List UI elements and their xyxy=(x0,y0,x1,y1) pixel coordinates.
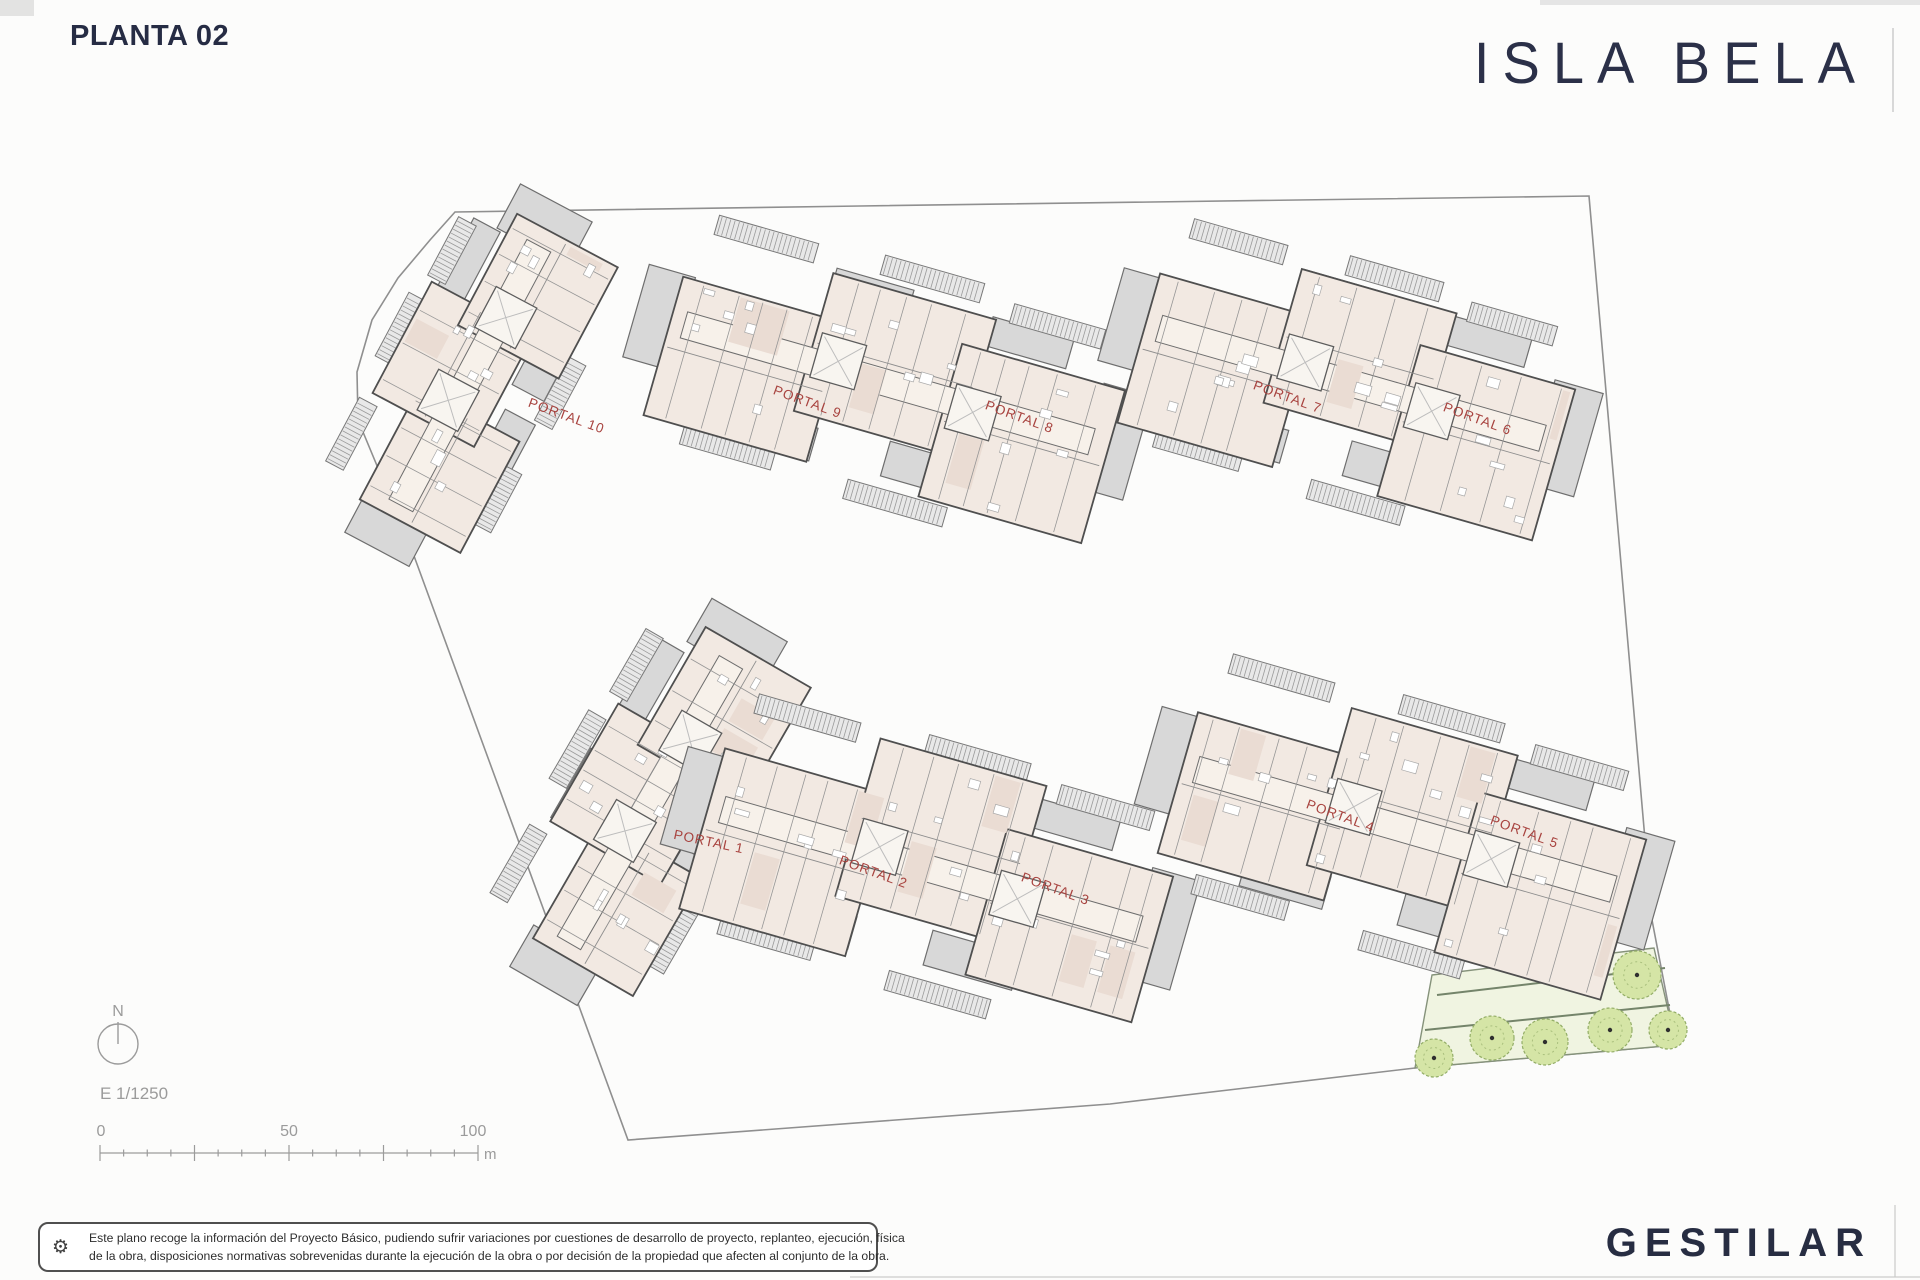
tree-icon xyxy=(1613,951,1661,999)
scan-artifact xyxy=(850,1276,1920,1278)
page-title: PLANTA 02 xyxy=(70,20,229,53)
scan-artifact xyxy=(1892,28,1894,112)
scale-ratio-label: E 1/1250 xyxy=(100,1084,168,1103)
disclaimer-line-1: Este plano recoge la información del Pro… xyxy=(89,1229,905,1247)
building-cluster-portales-4-5 xyxy=(1113,632,1694,1026)
site-plan-canvas: PORTAL 10PORTAL 9PORTAL 8PORTAL 7PORTAL … xyxy=(0,0,1920,1280)
building-cluster-portales-7-6 xyxy=(1077,197,1621,570)
scan-artifact xyxy=(1540,0,1920,5)
scale-unit-label: m xyxy=(484,1146,497,1163)
north-label: N xyxy=(112,1003,124,1020)
scale-tick-label: 0 xyxy=(97,1123,106,1140)
gear-icon: ⚙ xyxy=(52,1238,69,1257)
plan-sheet: PORTAL 10PORTAL 9PORTAL 8PORTAL 7PORTAL … xyxy=(0,0,1920,1280)
developer-logo-gestilar: GESTILAR xyxy=(1606,1221,1872,1266)
disclaimer-line-2: de la obra, disposiciones normativas sob… xyxy=(89,1247,905,1265)
tree-icon xyxy=(1415,1039,1453,1077)
building-cluster-portales-9-8 xyxy=(602,193,1170,573)
scan-artifact xyxy=(0,0,34,16)
disclaimer-box: ⚙ Este plano recoge la información del P… xyxy=(38,1222,878,1272)
scale-bar: 050100m xyxy=(97,1123,497,1163)
brand-logo-isla-bela: ISLA BELA xyxy=(1474,29,1868,97)
scan-artifact xyxy=(1894,1205,1896,1277)
tree-icon xyxy=(1649,1011,1687,1049)
north-compass: N xyxy=(98,1003,138,1064)
tree-icon xyxy=(1522,1019,1568,1065)
scale-tick-label: 100 xyxy=(460,1123,487,1140)
disclaimer-text: Este plano recoge la información del Pro… xyxy=(89,1229,905,1266)
building-cluster-portal-10 xyxy=(295,162,647,596)
scale-tick-label: 50 xyxy=(280,1123,298,1140)
tree-icon xyxy=(1470,1016,1514,1060)
tree-icon xyxy=(1588,1008,1632,1052)
